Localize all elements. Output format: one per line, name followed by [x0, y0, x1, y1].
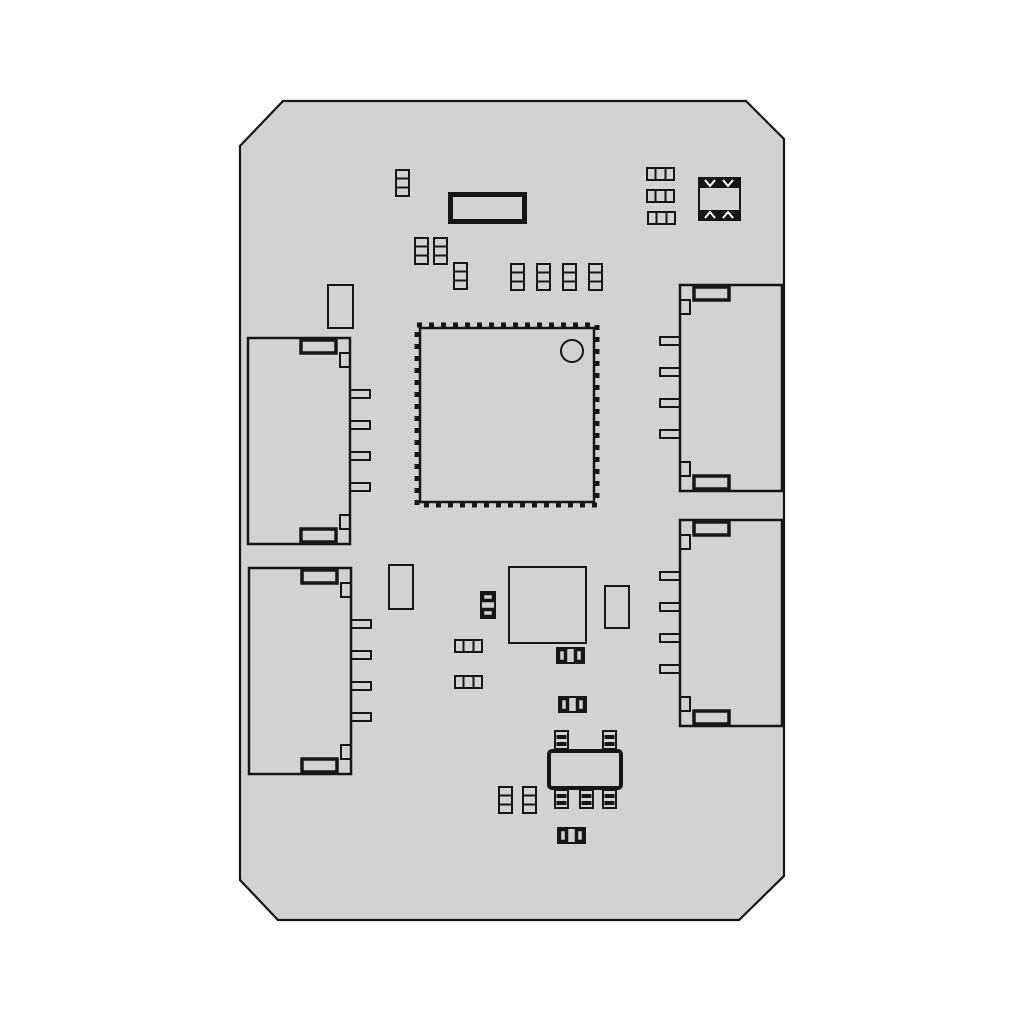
sot-body — [549, 751, 621, 788]
qfn-main-ic — [417, 325, 597, 505]
drawing-canvas — [0, 0, 1024, 1024]
pcb-assembly-drawing — [0, 0, 1024, 1024]
qfn-body — [420, 328, 594, 502]
